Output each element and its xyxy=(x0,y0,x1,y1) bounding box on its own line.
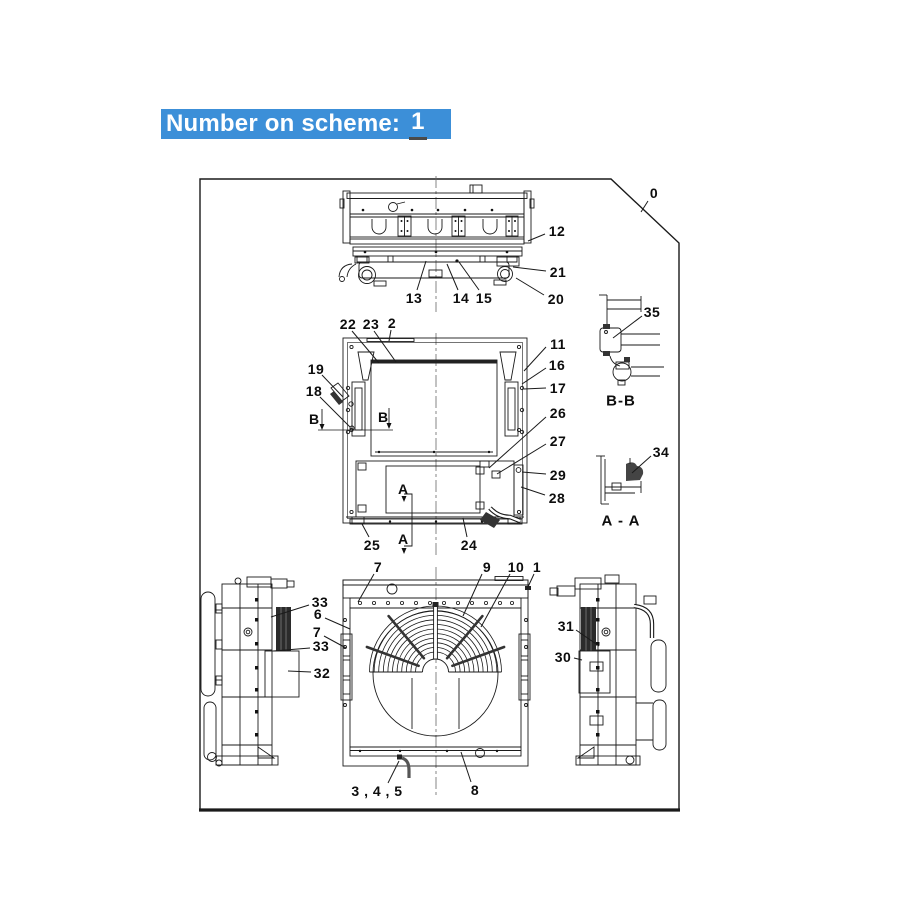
leader-23 xyxy=(374,331,396,362)
section-bb-drawing xyxy=(599,295,664,385)
leader-16 xyxy=(522,368,546,384)
page: Number on scheme: 1 xyxy=(0,0,900,900)
leader-22 xyxy=(352,331,379,363)
middle-view-drawing xyxy=(318,338,527,554)
leader-18 xyxy=(320,397,350,427)
parts-diagram-svg xyxy=(0,0,900,900)
leader-15 xyxy=(459,262,479,290)
leader-20 xyxy=(516,278,544,295)
leader-24 xyxy=(463,518,467,537)
leader-8 xyxy=(461,752,471,782)
top-view-drawing xyxy=(339,185,534,286)
leader-21 xyxy=(513,267,546,271)
leader-13 xyxy=(417,261,426,290)
leader-25 xyxy=(362,524,369,537)
section-aa-drawing xyxy=(596,456,643,504)
leader-lines xyxy=(271,201,651,783)
leader-345 xyxy=(388,761,399,783)
leader-27 xyxy=(497,444,546,474)
parts-diagram: 0122120131415222321116172627292819182524… xyxy=(0,0,900,900)
leader-28 xyxy=(521,487,545,495)
leader-32 xyxy=(288,671,311,672)
leader-12 xyxy=(528,234,545,241)
right-side-view-drawing xyxy=(550,575,666,765)
left-side-view-drawing xyxy=(201,577,299,766)
leader-35 xyxy=(613,316,642,338)
leader-26 xyxy=(489,417,546,468)
leader-14 xyxy=(447,264,458,290)
diagram-border xyxy=(199,179,680,810)
leader-10 xyxy=(481,574,510,627)
leader-30 xyxy=(574,658,582,660)
leader-2 xyxy=(389,330,391,341)
leader-29 xyxy=(522,472,546,474)
